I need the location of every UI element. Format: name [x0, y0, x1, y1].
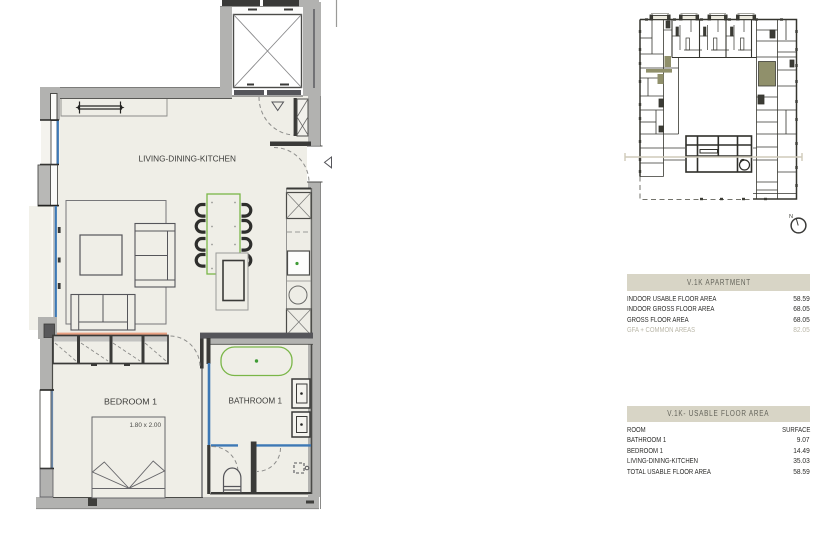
svg-text:BATHROOM 1: BATHROOM 1 — [229, 397, 283, 406]
svg-text:N: N — [789, 214, 793, 220]
svg-text:LIVING-DINING-KITCHEN: LIVING-DINING-KITCHEN — [139, 155, 237, 164]
svg-text:1.80 x 2.00: 1.80 x 2.00 — [130, 422, 162, 429]
svg-text:BEDROOM 1: BEDROOM 1 — [104, 398, 157, 407]
